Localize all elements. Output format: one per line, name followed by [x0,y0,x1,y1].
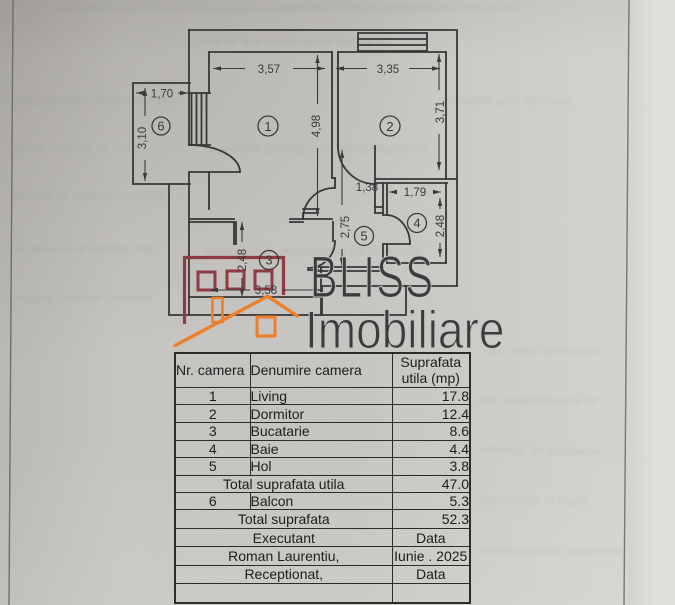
svg-text:3: 3 [265,253,272,268]
svg-text:3,58: 3,58 [255,285,277,297]
svg-text:2,48: 2,48 [237,249,249,271]
